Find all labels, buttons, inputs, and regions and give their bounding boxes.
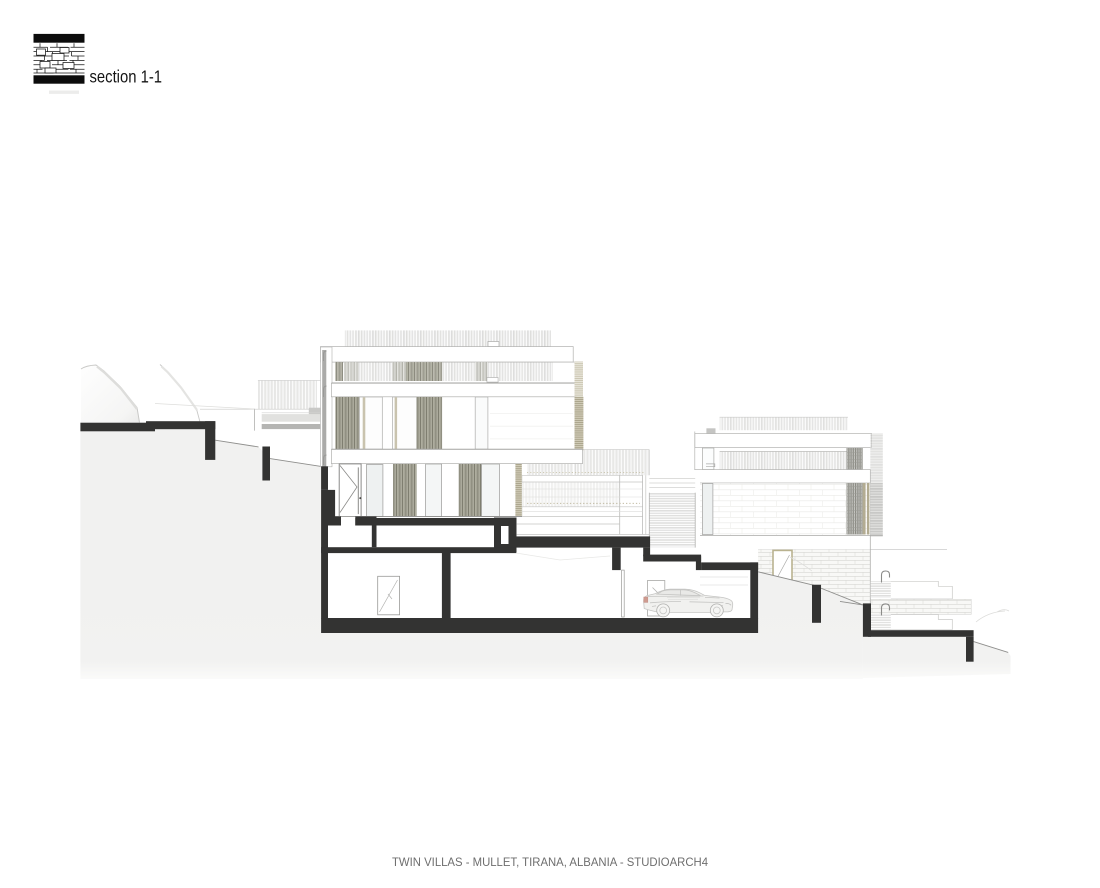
svg-text:TWIN VILLAS - MULLET, TIRANA: TWIN VILLAS - MULLET, TIRANA, ALBANIA - … (392, 856, 709, 869)
svg-text:section 1-1: section 1-1 (90, 67, 163, 87)
